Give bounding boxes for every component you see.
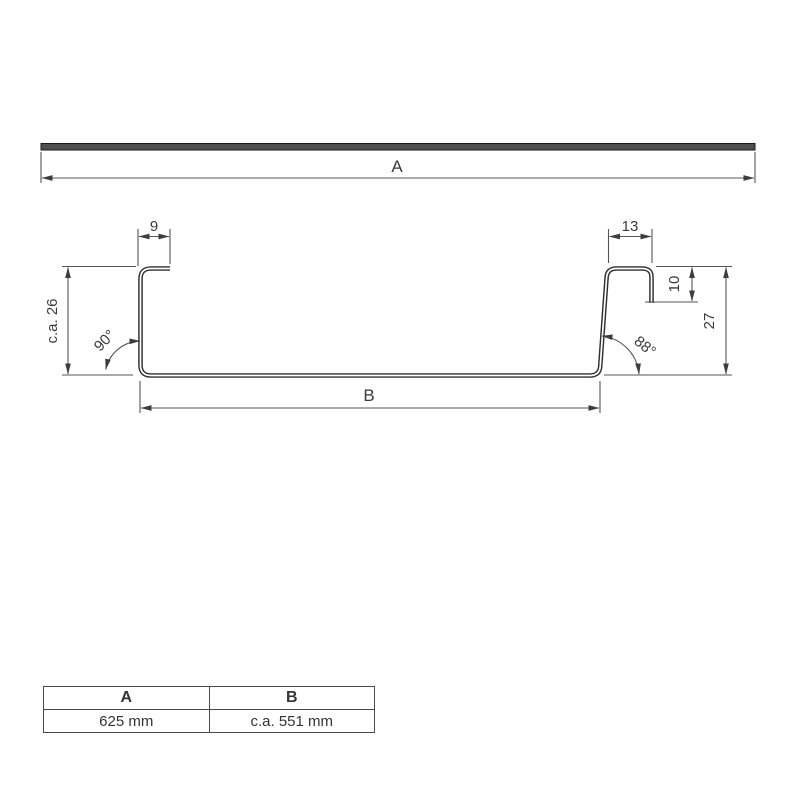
dim-left-lip: 9 xyxy=(138,218,170,266)
dim-left-height: c.a. 26 xyxy=(44,267,136,376)
profile-inner-line xyxy=(141,269,652,376)
dim-13-label: 13 xyxy=(622,218,639,235)
profile-outline xyxy=(141,269,652,376)
dim-27-label: 27 xyxy=(701,313,718,330)
dim-10-label: 10 xyxy=(666,276,683,293)
flat-sheet-bar xyxy=(41,144,755,151)
angle-left: 90° xyxy=(91,327,140,370)
dim-a-label: A xyxy=(391,157,403,176)
dim-9-label: 9 xyxy=(150,218,158,235)
top-view: A xyxy=(41,144,755,184)
angle-88-label: 88° xyxy=(631,333,659,360)
dim-ca26-extension-lines xyxy=(62,267,136,376)
dim-base-width: B xyxy=(140,381,600,413)
technical-drawing: A 9 13 c.a. 26 90° xyxy=(0,0,800,800)
angle-right: 88° xyxy=(602,333,659,374)
drawing-page: A 9 13 c.a. 26 90° xyxy=(0,0,800,800)
cross-section xyxy=(141,269,652,376)
dimensions-table: A B 625 mm c.a. 551 mm xyxy=(43,686,375,733)
angle-90-label: 90° xyxy=(91,327,119,355)
table-header-b: B xyxy=(209,687,375,710)
table-value-b: c.a. 551 mm xyxy=(209,710,375,733)
table-header-a: A xyxy=(44,687,210,710)
table-value-a: 625 mm xyxy=(44,710,210,733)
table-value-row: 625 mm c.a. 551 mm xyxy=(44,710,375,733)
dim-b-label: B xyxy=(363,386,374,405)
table-header-row: A B xyxy=(44,687,375,710)
dim-right-lip: 13 xyxy=(609,218,653,263)
dim-ca26-label: c.a. 26 xyxy=(44,298,61,343)
